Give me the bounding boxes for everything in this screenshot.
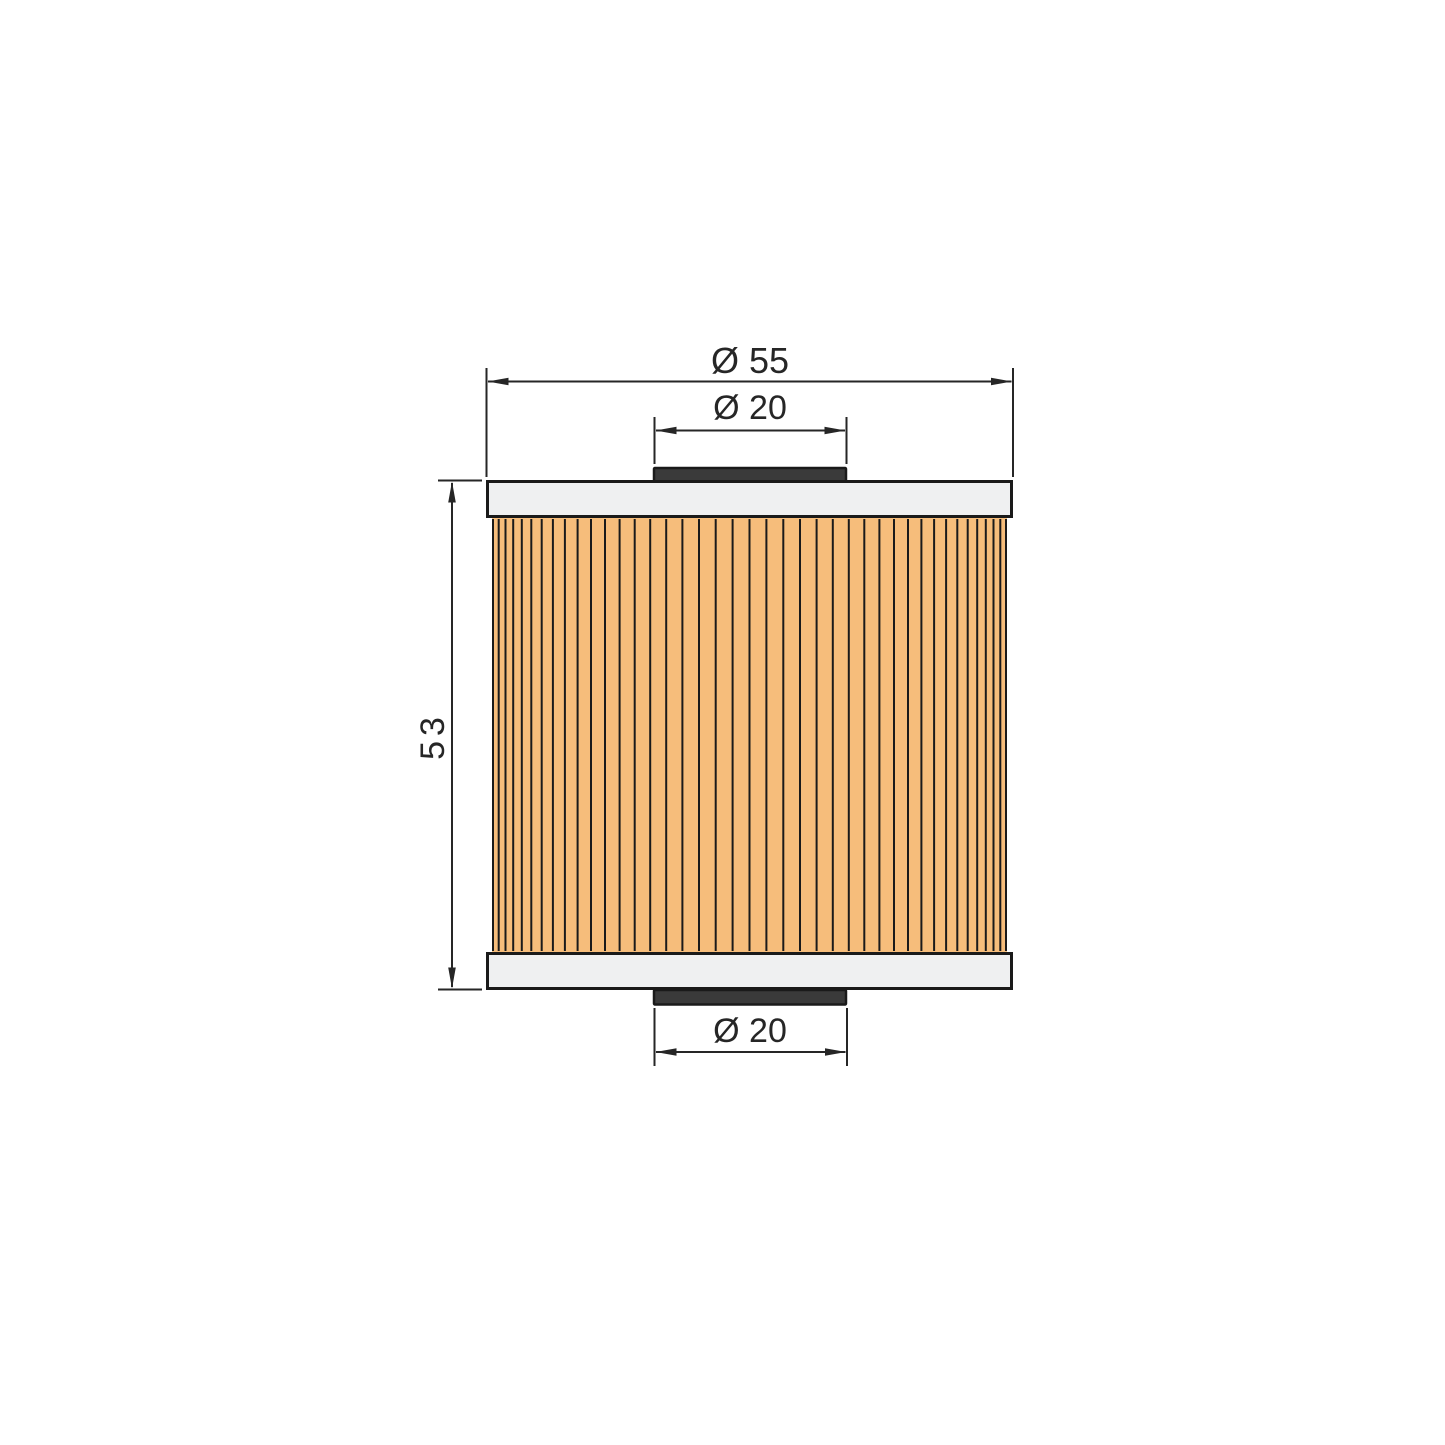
filter-media-body: [492, 518, 1007, 952]
filter-element-drawing: [0, 0, 1445, 1445]
arrowhead-left: [656, 427, 677, 435]
dim-label-top-inner-diameter: Ø 20: [713, 391, 787, 425]
dim-label-outer-diameter: Ø 55: [711, 343, 789, 379]
dim-label-bottom-inner-diameter: Ø 20: [713, 1014, 787, 1048]
arrowhead-left: [488, 378, 509, 386]
bottom-end-cap: [488, 954, 1012, 989]
arrowhead-right: [991, 378, 1012, 386]
technical-drawing-canvas: Ø 55 Ø 20 53 Ø 20: [0, 0, 1445, 1445]
bottom-gasket-collar: [654, 990, 846, 1005]
top-gasket-collar: [654, 468, 846, 482]
arrowhead-right: [825, 427, 846, 435]
arrowhead-left: [656, 1048, 677, 1056]
top-end-cap: [488, 482, 1012, 517]
dim-label-height: 53: [416, 712, 450, 760]
arrowhead-right: [825, 1048, 846, 1056]
arrowhead-down: [448, 968, 456, 989]
arrowhead-up: [448, 482, 456, 503]
